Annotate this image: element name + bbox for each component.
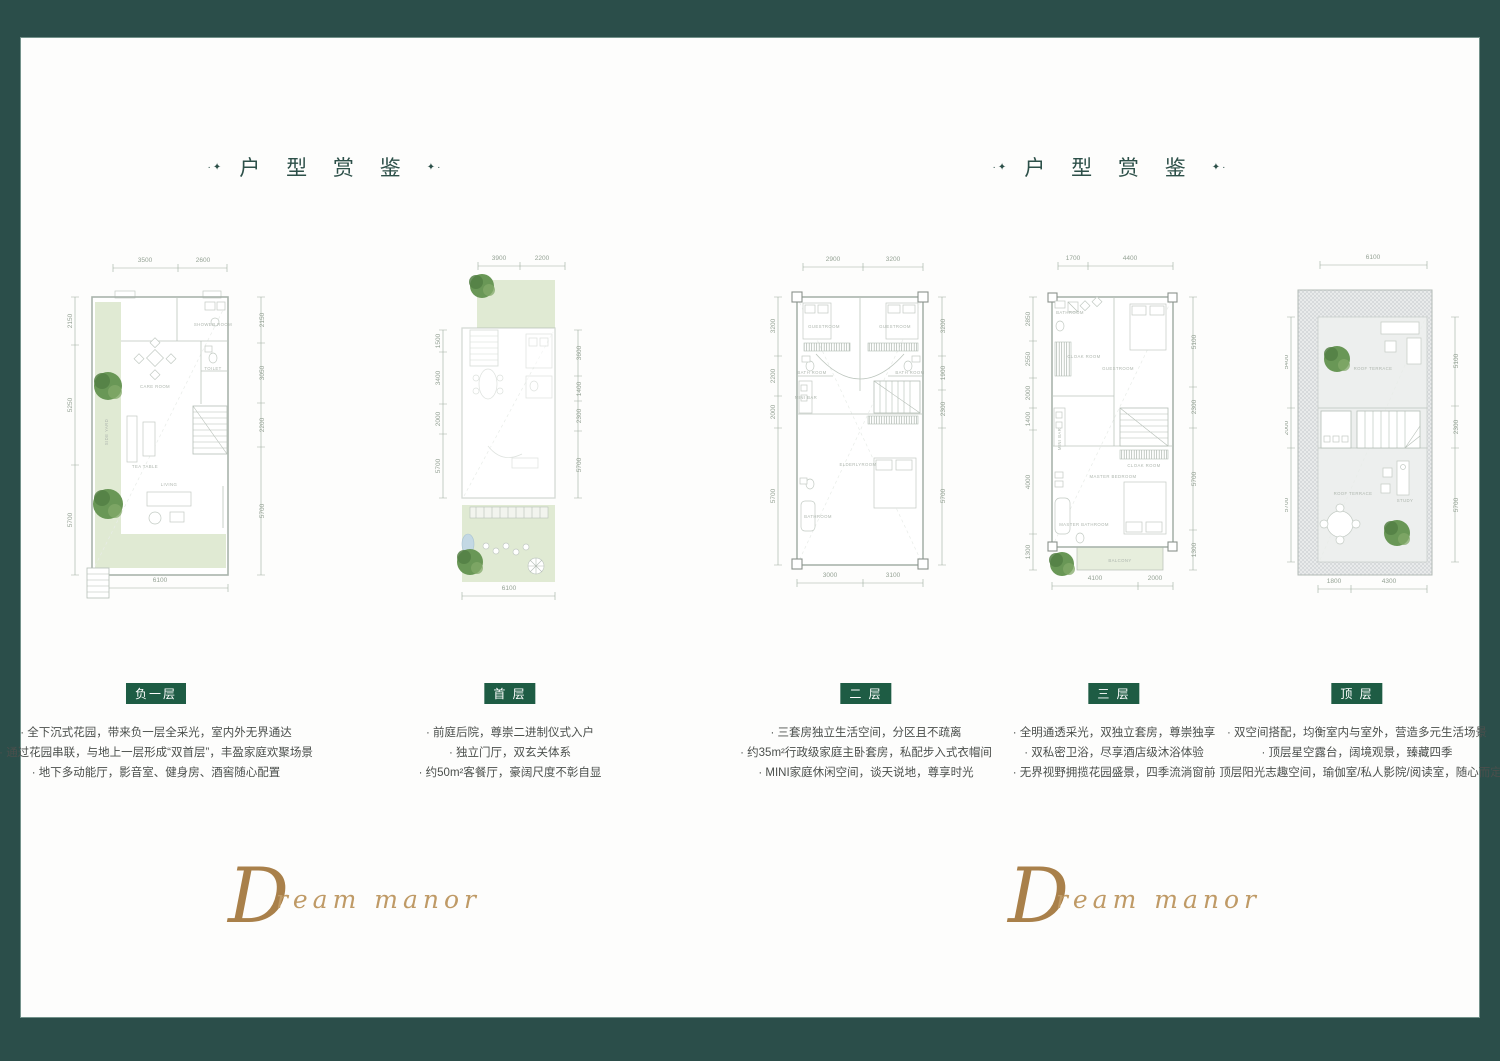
desc-roof: 双空间搭配，均衡室内与室外，营造多元生活场景 顶层星空露台，阔境观景，臻藏四季 … bbox=[1157, 723, 1500, 783]
room-label: BALCONY bbox=[1108, 558, 1131, 563]
dim-label: 5700 bbox=[67, 512, 74, 527]
dim-label: 3400 bbox=[435, 370, 442, 385]
deck-pergola bbox=[470, 507, 548, 518]
dim-label: 2150 bbox=[67, 313, 74, 328]
ornament-icon: ·✦ bbox=[208, 162, 224, 173]
tree-icon bbox=[1384, 520, 1410, 546]
floorplan-roof-drawing: 6100 5400 2000 5700 5100 2300 5700 1800 … bbox=[1285, 246, 1480, 618]
room-label: CARE ROOM bbox=[140, 384, 170, 389]
room-label: CLOAK ROOM bbox=[1127, 463, 1160, 468]
room-label: GUESTROOM bbox=[1102, 366, 1134, 371]
dim-label: 1400 bbox=[576, 381, 583, 396]
floorplan-ground-drawing: 3900 2200 1500 3400 2000 5700 3600 1400 … bbox=[430, 246, 625, 618]
dim-label: 3200 bbox=[770, 318, 777, 333]
frame-right bbox=[1480, 0, 1500, 1061]
room-label: ROOF TERRACE bbox=[1354, 366, 1393, 371]
dim-label: 5700 bbox=[259, 503, 266, 518]
bullet-line: 前庭后院，尊崇二进制仪式入户 bbox=[310, 723, 710, 743]
room-label: LIVING bbox=[161, 482, 178, 487]
dim-label: 1300 bbox=[1191, 542, 1198, 557]
page-title: 户 型 赏 鉴 bbox=[1024, 152, 1196, 182]
dim-label: 2300 bbox=[1191, 399, 1198, 414]
bullet-line: 通过花园串联，与地上一层形成“双首层”，丰盈家庭欢聚场景 bbox=[0, 743, 356, 763]
tree-icon bbox=[93, 489, 123, 519]
tree-icon bbox=[1049, 552, 1075, 576]
stairs bbox=[1120, 408, 1168, 446]
floorplan-third: 1700 4400 2850 2550 2000 1400 4000 1300 … bbox=[1018, 246, 1223, 623]
dim-label: 5700 bbox=[576, 457, 583, 472]
room-label: MASTER BEDROOM bbox=[1090, 474, 1137, 479]
dim-label: 3600 bbox=[576, 345, 583, 360]
closet bbox=[1055, 342, 1071, 376]
dim-label: 2900 bbox=[826, 256, 841, 263]
floorplan-basement-drawing: 3500 2600 2150 5250 5700 2150 3050 2200 … bbox=[55, 246, 315, 618]
dim-label: 4100 bbox=[1088, 575, 1103, 582]
dim-label: 2300 bbox=[576, 408, 583, 423]
bullet-line: 地下多动能厅，影音室、健身房、酒窖随心配置 bbox=[0, 763, 356, 783]
dim-label: 1700 bbox=[1066, 255, 1081, 262]
dim-label: 3200 bbox=[940, 318, 947, 333]
section-title-left: ·✦ 户 型 赏 鉴 ✦· bbox=[160, 152, 490, 182]
floorplan-ground: 3900 2200 1500 3400 2000 5700 3600 1400 … bbox=[430, 246, 625, 623]
stairs bbox=[874, 381, 920, 413]
dim-label: 4000 bbox=[1025, 474, 1032, 489]
tree-icon bbox=[457, 549, 483, 575]
room-label: SIDE YARD bbox=[104, 419, 109, 445]
tree-icon bbox=[469, 274, 495, 298]
outdoor-stairs bbox=[87, 568, 109, 598]
room-label: BATHROOM bbox=[1056, 310, 1084, 315]
badge-third: 三 层 bbox=[1088, 683, 1139, 704]
frame-top bbox=[0, 0, 1500, 37]
kitchenette bbox=[1321, 411, 1351, 448]
stairs bbox=[470, 330, 498, 366]
frame-bottom bbox=[0, 1018, 1500, 1061]
bed bbox=[803, 303, 831, 339]
stairs bbox=[1357, 411, 1420, 448]
dim-label: 2200 bbox=[770, 368, 777, 383]
room-label: GUESTROOM bbox=[808, 324, 840, 329]
frame-left bbox=[0, 0, 20, 1061]
desc-ground: 前庭后院，尊崇二进制仪式入户 独立门厅，双玄关体系 约50m²客餐厅，豪阔尺度不… bbox=[310, 723, 710, 783]
dim-label: 6100 bbox=[153, 577, 168, 584]
dim-label: 2000 bbox=[1285, 420, 1290, 435]
stairs bbox=[193, 406, 227, 454]
closet bbox=[868, 343, 918, 351]
room-label: MASTER BATHROOM bbox=[1059, 522, 1109, 527]
floorplan-roof: 6100 5400 2000 5700 5100 2300 5700 1800 … bbox=[1285, 246, 1480, 623]
dim-label: 5700 bbox=[1285, 497, 1290, 512]
room-label: MINI BAR bbox=[1057, 428, 1062, 450]
room-label: CLOAK ROOM bbox=[1067, 354, 1100, 359]
parasol-table bbox=[528, 558, 544, 574]
badge-ground: 首 层 bbox=[484, 683, 535, 704]
ornament-icon: ✦· bbox=[1212, 162, 1228, 173]
tree-icon bbox=[94, 372, 122, 400]
bullet-line: 独立门厅，双玄关体系 bbox=[310, 743, 710, 763]
room-label: TOILET bbox=[204, 366, 221, 371]
ornament-icon: ✦· bbox=[427, 162, 443, 173]
page-title: 户 型 赏 鉴 bbox=[239, 152, 411, 182]
dim-label: 2000 bbox=[1025, 385, 1032, 400]
dim-label: 1500 bbox=[435, 333, 442, 348]
floorplan-basement: 3500 2600 2150 5250 5700 2150 3050 2200 … bbox=[55, 246, 315, 623]
dim-label: 2600 bbox=[196, 257, 211, 264]
floorplan-third-drawing: 1700 4400 2850 2550 2000 1400 4000 1300 … bbox=[1018, 246, 1223, 618]
dim-label: 5250 bbox=[67, 397, 74, 412]
closet bbox=[804, 343, 850, 351]
bullet-line: 双空间搭配，均衡室内与室外，营造多元生活场景 bbox=[1157, 723, 1500, 743]
dim-label: 5700 bbox=[940, 488, 947, 503]
closet bbox=[868, 416, 918, 424]
bed bbox=[874, 458, 916, 508]
dim-label: 2000 bbox=[435, 411, 442, 426]
room-label: BATH ROOM bbox=[895, 370, 924, 375]
dim-label: 5700 bbox=[435, 458, 442, 473]
dim-label: 5700 bbox=[1191, 471, 1198, 486]
ornament-icon: ·✦ bbox=[993, 162, 1009, 173]
room-label: BATHROOM bbox=[804, 514, 832, 519]
dim-label: 5400 bbox=[1285, 354, 1290, 369]
dim-label: 6100 bbox=[1366, 254, 1381, 261]
bullet-line: 顶层阳光志趣空间，瑜伽室/私人影院/阅读室，随心而定 bbox=[1157, 763, 1500, 783]
badge-basement: 负一层 bbox=[126, 683, 186, 704]
dim-label: 1800 bbox=[1327, 578, 1342, 585]
room-label: ROOF TERRACE bbox=[1334, 491, 1373, 496]
badge-second: 二 层 bbox=[840, 683, 891, 704]
dim-label: 1300 bbox=[1025, 544, 1032, 559]
dim-label: 1400 bbox=[1025, 411, 1032, 426]
dim-label: 3200 bbox=[886, 256, 901, 263]
dim-label: 4300 bbox=[1382, 578, 1397, 585]
dim-label: 5700 bbox=[770, 488, 777, 503]
dim-label: 3050 bbox=[259, 365, 266, 380]
dim-label: 2000 bbox=[1148, 575, 1163, 582]
dim-label: 1900 bbox=[940, 365, 947, 380]
room-label: ELDERLYROOM bbox=[839, 462, 876, 467]
dim-label: 2300 bbox=[940, 401, 947, 416]
room-label: SHOWER ROOM bbox=[194, 322, 232, 327]
floorplan-second-drawing: 2900 3200 3200 2200 2000 5700 3200 1900 … bbox=[758, 246, 963, 618]
bullet-line: 全下沉式花园，带来负一层全采光，室内外无界通达 bbox=[0, 723, 356, 743]
room-label: STUDY bbox=[1397, 498, 1414, 503]
dim-label: 3100 bbox=[886, 572, 901, 579]
room-label: BATH ROOM bbox=[797, 370, 826, 375]
dim-label: 2000 bbox=[770, 404, 777, 419]
dim-label: 6100 bbox=[502, 585, 517, 592]
signature-left: Dream manor bbox=[228, 858, 458, 963]
dim-label: 2150 bbox=[259, 312, 266, 327]
dim-label: 2550 bbox=[1025, 351, 1032, 366]
signature-rest: ream manor bbox=[276, 885, 481, 914]
bed bbox=[1124, 482, 1166, 534]
closet bbox=[1120, 450, 1168, 459]
dim-label: 3000 bbox=[823, 572, 838, 579]
tree-icon bbox=[1324, 346, 1350, 372]
bullet-line: 约50m²客餐厅，豪阔尺度不彰自显 bbox=[310, 763, 710, 783]
dim-label: 2200 bbox=[259, 417, 266, 432]
signature-rest: ream manor bbox=[1056, 885, 1261, 914]
dim-label: 3900 bbox=[492, 255, 507, 262]
badge-roof: 顶 层 bbox=[1331, 683, 1382, 704]
bed bbox=[1130, 304, 1166, 350]
desc-basement: 全下沉式花园，带来负一层全采光，室内外无界通达 通过花园串联，与地上一层形成“双… bbox=[0, 723, 356, 783]
bullet-line: 顶层星空露台，阔境观景，臻藏四季 bbox=[1157, 743, 1500, 763]
room-label: TEA TABLE bbox=[132, 464, 158, 469]
floorplan-second: 2900 3200 3200 2200 2000 5700 3200 1900 … bbox=[758, 246, 963, 623]
dim-label: 5100 bbox=[1453, 353, 1460, 368]
dim-label: 2850 bbox=[1025, 311, 1032, 326]
section-title-right: ·✦ 户 型 赏 鉴 ✦· bbox=[945, 152, 1275, 182]
dim-label: 2300 bbox=[1453, 419, 1460, 434]
dim-label: 5100 bbox=[1191, 334, 1198, 349]
dim-label: 5700 bbox=[1453, 497, 1460, 512]
dim-label: 4400 bbox=[1123, 255, 1138, 262]
dim-label: 2200 bbox=[535, 255, 550, 262]
room-label: MINI BAR bbox=[795, 395, 817, 400]
dim-label: 3500 bbox=[138, 257, 153, 264]
bed bbox=[886, 303, 918, 339]
room-label: GUESTROOM bbox=[879, 324, 911, 329]
signature-right: Dream manor bbox=[1008, 858, 1238, 963]
